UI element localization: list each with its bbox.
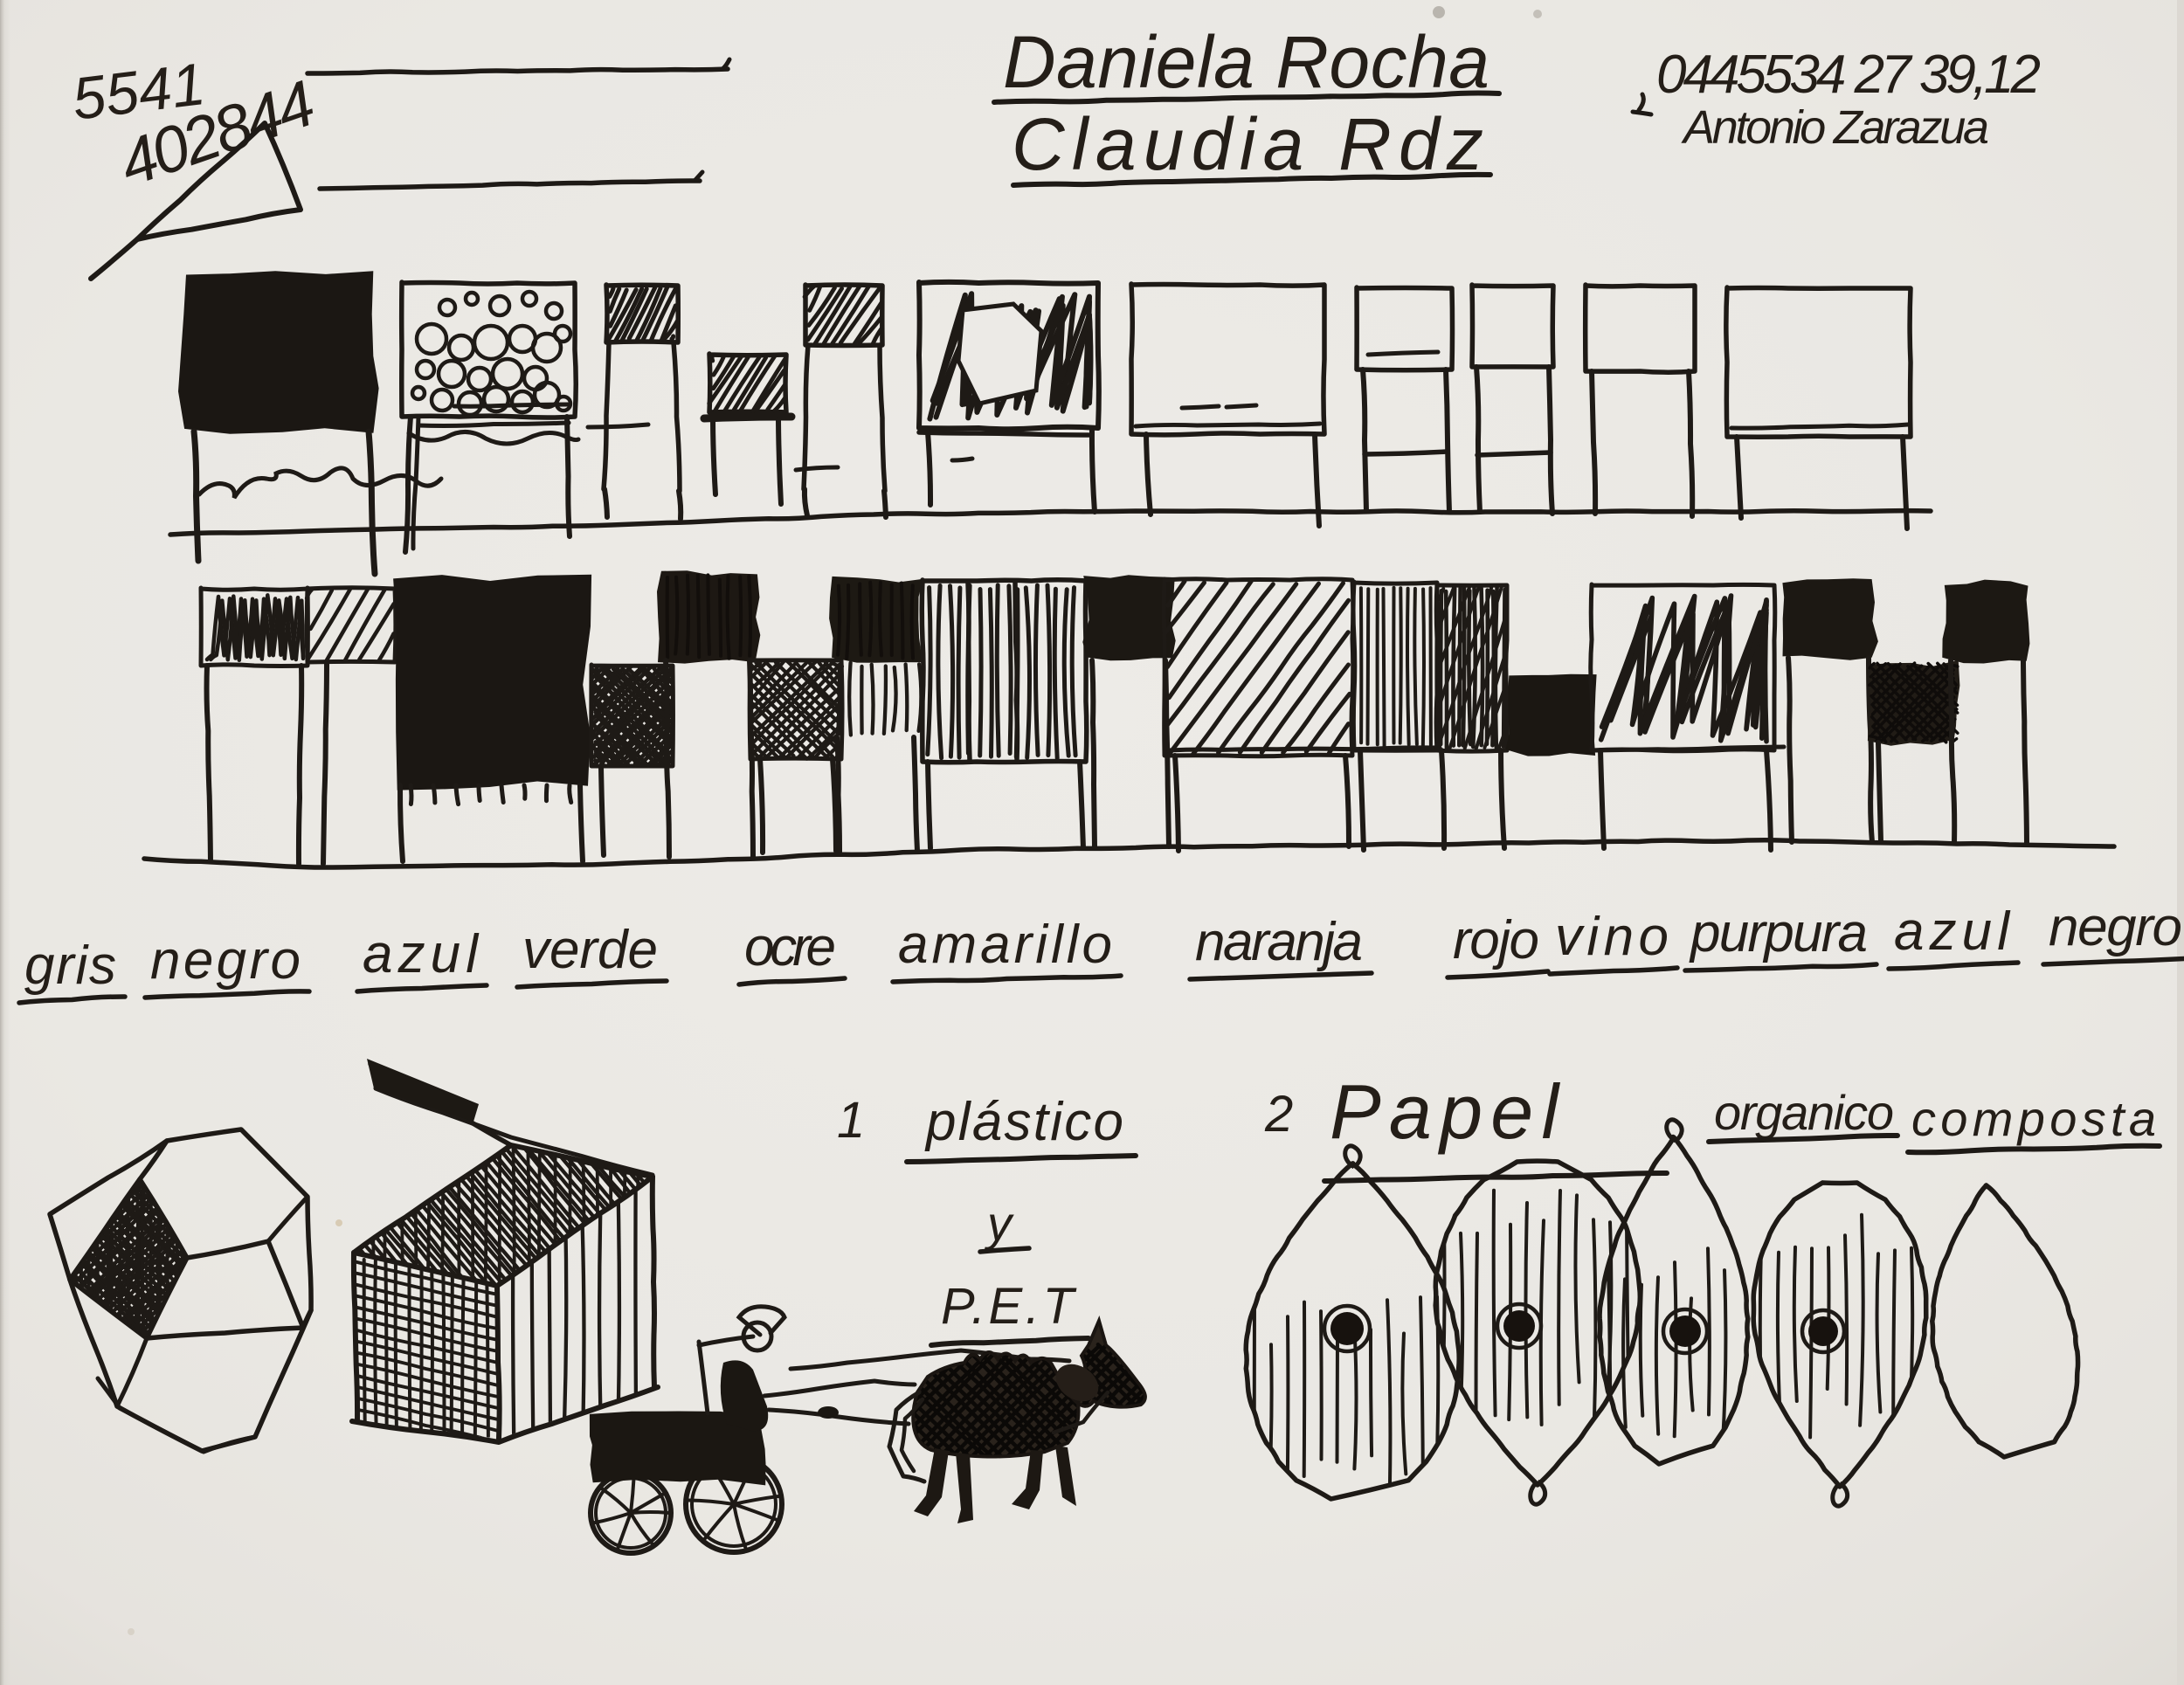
svg-text:rojo: rojo — [1453, 910, 1539, 970]
svg-text:Daniela Rocha: Daniela Rocha — [1003, 21, 1489, 103]
svg-text:0445534 27 39,12: 0445534 27 39,12 — [1656, 45, 2041, 105]
svg-text:Antonio Zarazua: Antonio Zarazua — [1681, 101, 1989, 154]
svg-text:P.E.T: P.E.T — [941, 1278, 1077, 1335]
svg-text:composta: composta — [1911, 1091, 2156, 1146]
svg-text:verde: verde — [522, 920, 658, 980]
svg-text:vino: vino — [1555, 907, 1669, 967]
svg-text:y: y — [984, 1196, 1014, 1251]
svg-text:ocre: ocre — [744, 917, 836, 977]
svg-text:2: 2 — [1264, 1086, 1293, 1143]
svg-text:Papel: Papel — [1330, 1068, 1560, 1155]
svg-text:1: 1 — [837, 1092, 865, 1149]
svg-text:organico: organico — [1714, 1085, 1894, 1140]
svg-text:negro: negro — [150, 930, 301, 991]
svg-text:naranja: naranja — [1195, 912, 1363, 972]
svg-text:negro: negro — [2049, 897, 2182, 957]
svg-text:purpura: purpura — [1689, 903, 1868, 963]
svg-text:plástico: plástico — [924, 1092, 1123, 1152]
svg-text:gris: gris — [24, 936, 116, 996]
svg-text:Claudia Rdz: Claudia Rdz — [1012, 103, 1483, 185]
